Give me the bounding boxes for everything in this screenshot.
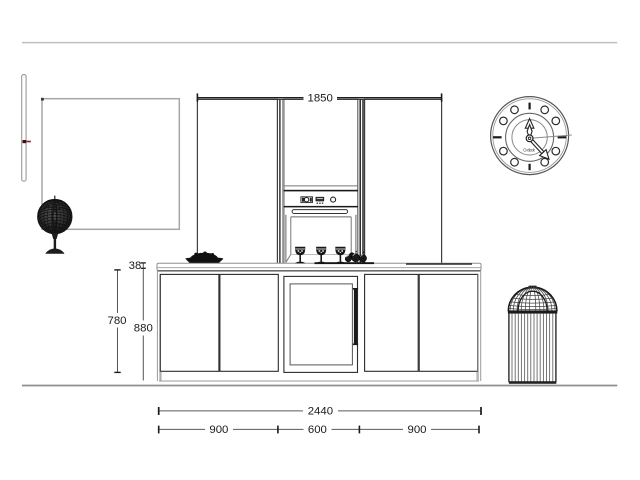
svg-text:900: 900	[407, 424, 426, 436]
svg-text:900: 900	[209, 424, 228, 436]
svg-text:880: 880	[134, 323, 153, 335]
svg-text:1850: 1850	[308, 92, 333, 104]
svg-text:2440: 2440	[308, 406, 333, 418]
svg-text:O-clock: O-clock	[523, 147, 536, 152]
svg-text:600: 600	[308, 424, 327, 436]
svg-text:780: 780	[107, 315, 126, 327]
svg-text:38: 38	[129, 260, 142, 272]
